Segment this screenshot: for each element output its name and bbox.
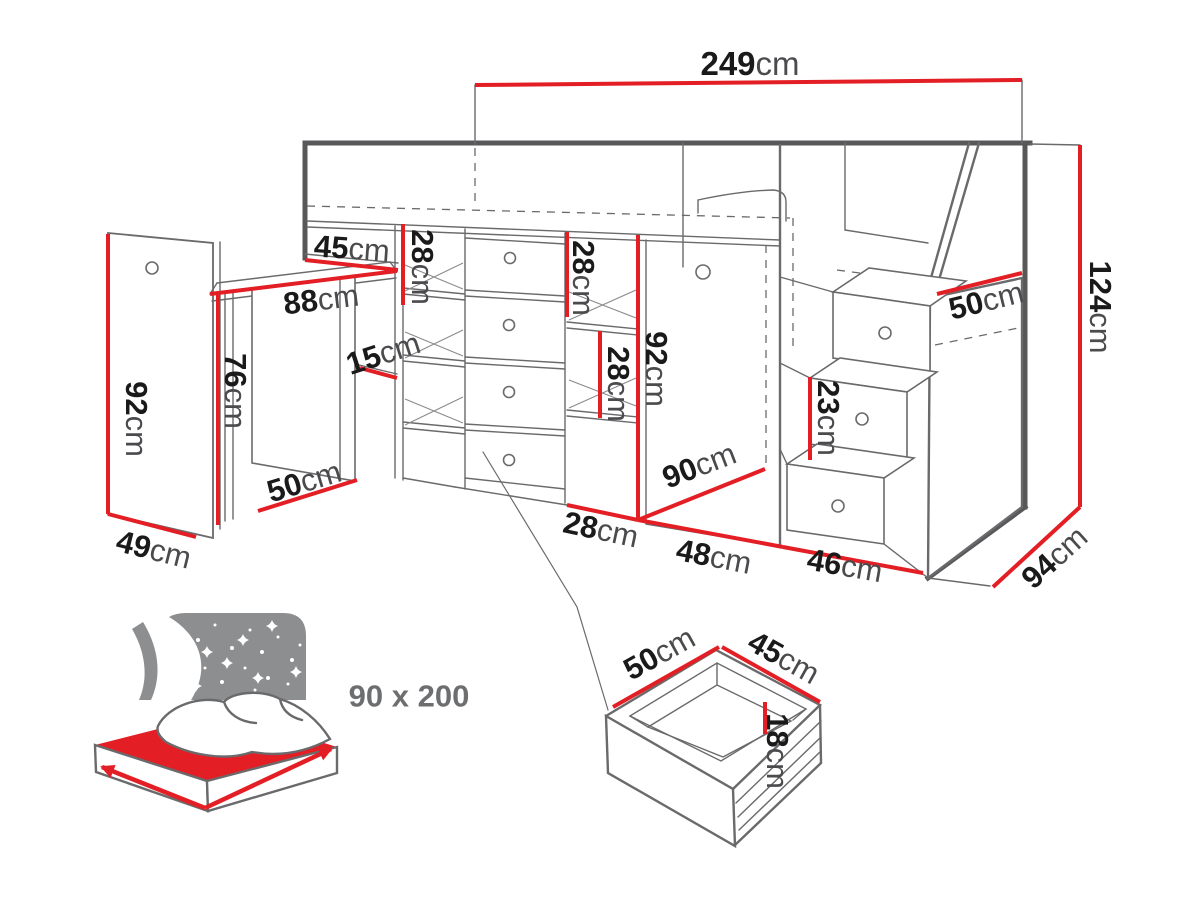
step-knob-3 [879,327,891,339]
dim-shelf-height-c-label: 28cm [602,346,637,422]
step-knob-1 [832,500,844,512]
dim-cabinet-height-label: 92cm [640,331,675,407]
dim-stairs-width-label: 46cm [805,541,886,589]
dim-shelf-height-b-label: 28cm [567,240,602,316]
diagram-canvas: 249cm 124cm 94cm 45cm 28cm 88cm 15cm 76c… [0,0,1200,899]
panel-hole [146,262,158,274]
drawer-knob-4 [504,455,515,466]
drawer-knob-1 [505,253,516,264]
mattress-icon: 90 x 200 [95,613,469,811]
dim-drawer-section-width-label: 28cm [560,504,641,554]
stairs-side-panel [928,278,1022,578]
dim-top-shelf-depth-label: 45cm [313,228,391,268]
dim-step-height-label: 23cm [812,380,847,456]
step-knob-2 [856,413,868,425]
dim-total-width-label: 249cm [700,45,799,82]
dim-drawer-depth-label: 50cm [617,619,700,686]
blanket-crescent [132,622,158,700]
drawer-knob-3 [504,387,515,398]
dim-desk-height-label: 76cm [219,353,254,429]
stairs [780,143,1022,578]
dim-shelf-height-a-label: 28cm [406,229,441,305]
handrail [934,143,979,297]
drawer-knob-2 [504,320,515,331]
mattress-size-label: 90 x 200 [349,679,470,714]
dimension-diagram: 249cm 124cm 94cm 45cm 28cm 88cm 15cm 76c… [0,0,1200,899]
duvet [157,693,330,757]
dim-side-panel-height-label: 92cm [120,381,155,457]
dim-total-height-label: 124cm [1084,260,1119,353]
drawer-detail: 50cm 45cm 18cm [483,452,826,846]
door-knob [696,265,710,279]
starry-blanket [169,613,306,700]
drawer-leader-line [483,452,608,710]
dim-drawer-height-label: 18cm [761,713,796,789]
